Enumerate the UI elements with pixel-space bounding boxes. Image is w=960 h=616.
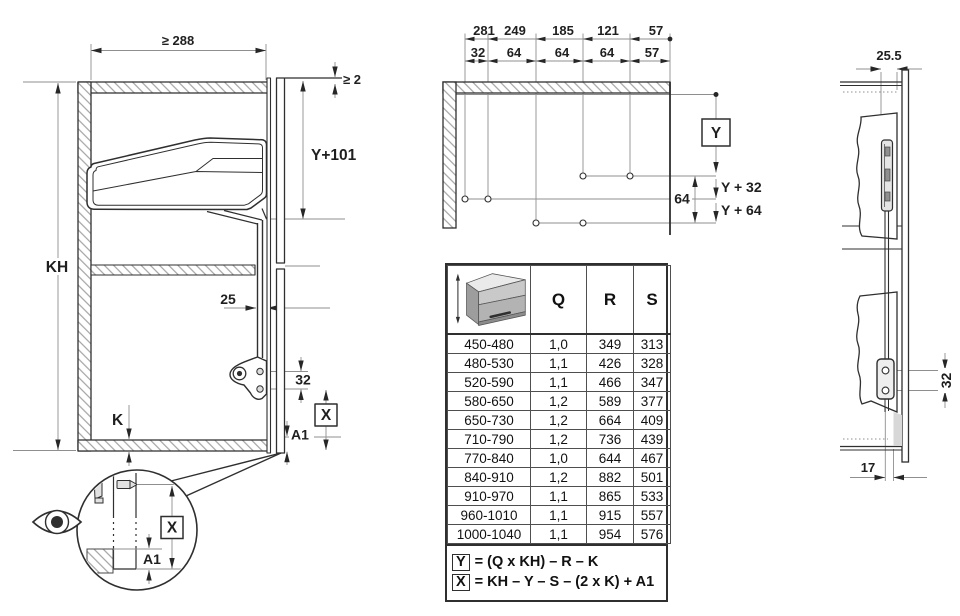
cell-r: 426 [587,354,634,373]
cell-r: 466 [587,373,634,392]
dim-x: X [321,407,332,424]
table-row: 770-840 1,0 644 467 [448,449,671,468]
cell-q: 1,1 [531,525,587,544]
cell-s: 313 [634,334,671,354]
dim-top-gap: ≥ 2 [343,72,361,87]
pitch-label-2: 64 [555,45,570,60]
dim-32-side: 32 [938,373,954,389]
pitch-label-4: 57 [645,45,659,60]
cell-range: 710-790 [448,430,531,449]
side-lower-section [857,211,902,446]
dim-y: Y [711,125,722,142]
formula-x: X= KH – Y – S – (2 x K) + A1 [452,574,662,591]
formula-x-symbol: X [452,574,470,591]
dimension-table: Q R S 450-480 1,0 349 313 480-530 1,1 42… [445,263,668,602]
dist-label-4: 57 [649,23,663,38]
cell-r: 664 [587,411,634,430]
pitch-label-3: 64 [600,45,615,60]
cell-range: 770-840 [448,449,531,468]
table-row: 580-650 1,2 589 377 [448,392,671,411]
dim-kh: KH [46,259,68,276]
corner-shade [894,412,903,446]
cell-r: 865 [587,487,634,506]
cell-range: 840-910 [448,468,531,487]
cell-s: 377 [634,392,671,411]
table-row: 480-530 1,1 426 328 [448,354,671,373]
table-row: 840-910 1,2 882 501 [448,468,671,487]
dist-label-0: 281 [473,23,495,38]
formula-y: Y= (Q x KH) – R – K [452,554,662,571]
cell-range: 960-1010 [448,506,531,525]
formula-block: Y= (Q x KH) – R – K X= KH – Y – S – (2 x… [447,544,666,600]
col-header-s: S [634,266,671,335]
pitch-label-0: 32 [471,45,485,60]
cell-q: 1,1 [531,354,587,373]
cell-r: 589 [587,392,634,411]
dim-width-min: ≥ 288 [162,33,194,48]
q-r-s-table: Q R S 450-480 1,0 349 313 480-530 1,1 42… [447,265,671,544]
cell-range: 650-730 [448,411,531,430]
dim-row-gap: 64 [674,191,690,207]
cell-range: 480-530 [448,354,531,373]
cell-r: 954 [587,525,634,544]
table-row: 450-480 1,0 349 313 [448,334,671,354]
cell-q: 1,2 [531,392,587,411]
formula-y-symbol: Y [452,554,470,571]
cell-s: 576 [634,525,671,544]
dist-label-3: 121 [597,23,619,38]
cell-q: 1,2 [531,430,587,449]
cell-s: 409 [634,411,671,430]
cell-range: 580-650 [448,392,531,411]
table-row: 960-1010 1,1 915 557 [448,506,671,525]
shelf [91,265,255,275]
formula-y-expression: = (Q x KH) – R – K [475,554,599,570]
manual-page: ≥ 288 ≥ 2 Y+101 KH 25 32 K X A1 [0,0,960,616]
col-header-r: R [587,266,634,335]
cabinet-icon [451,266,527,328]
table-row: 520-590 1,1 466 347 [448,373,671,392]
detail-dim-x: X [167,520,178,537]
front-panel [267,78,342,453]
drill-panels [443,82,670,228]
section-dim-lines [13,44,345,466]
cell-q: 1,1 [531,506,587,525]
cell-s: 533 [634,487,671,506]
detail-dim-a1: A1 [143,551,161,567]
cell-q: 1,0 [531,334,587,354]
lever-arm [230,220,266,399]
cell-range: 450-480 [448,334,531,354]
dim-y-plus-64: Y + 64 [721,202,762,218]
cell-s: 347 [634,373,671,392]
drilling-pattern-view: 281 249 185 121 57 32 64 64 64 57 Y Y + … [443,23,762,235]
side-front-panel [902,70,909,462]
dim-17: 17 [861,460,875,475]
dim-y-plus-101: Y+101 [311,147,357,164]
cell-q: 1,2 [531,468,587,487]
cell-q: 1,2 [531,411,587,430]
cell-r: 882 [587,468,634,487]
cell-s: 467 [634,449,671,468]
cell-r: 644 [587,449,634,468]
cell-range: 910-970 [448,487,531,506]
dim-k: K [112,412,124,429]
cell-s: 557 [634,506,671,525]
dist-label-2: 185 [552,23,574,38]
dim-y-plus-32: Y + 32 [721,179,762,195]
cell-s: 328 [634,354,671,373]
dim-a1: A1 [291,427,309,443]
cabinet-panels [78,82,268,451]
cell-q: 1,1 [531,487,587,506]
cell-q: 1,1 [531,373,587,392]
dist-label-1: 249 [504,23,526,38]
cell-r: 915 [587,506,634,525]
eye-icon [33,511,81,534]
cell-s: 439 [634,430,671,449]
cabinet-section-view: ≥ 288 ≥ 2 Y+101 KH 25 32 K X A1 [13,33,361,466]
side-upper-section [857,113,897,239]
table-row: 1000-1040 1,1 954 576 [448,525,671,544]
cell-s: 501 [634,468,671,487]
col-header-q: Q [531,266,587,335]
cell-r: 736 [587,430,634,449]
formula-x-expression: = KH – Y – S – (2 x K) + A1 [475,574,654,590]
table-header-row: Q R S [448,266,671,335]
dim-32: 32 [295,372,311,388]
dim-25: 25 [220,291,236,307]
cell-q: 1,0 [531,449,587,468]
cell-range: 520-590 [448,373,531,392]
detail-circle: X A1 [33,453,281,590]
fixing-screw [117,481,130,489]
pitch-label-1: 64 [507,45,522,60]
cell-r: 349 [587,334,634,354]
dim-25-5: 25.5 [876,48,901,63]
cell-range: 1000-1040 [448,525,531,544]
table-row: 710-790 1,2 736 439 [448,430,671,449]
table-row: 650-730 1,2 664 409 [448,411,671,430]
table-row: 910-970 1,1 865 533 [448,487,671,506]
side-detail-view: 25.5 32 17 [840,48,954,481]
lift-mechanism [87,138,267,224]
cabinet-icon-cell [448,266,531,335]
